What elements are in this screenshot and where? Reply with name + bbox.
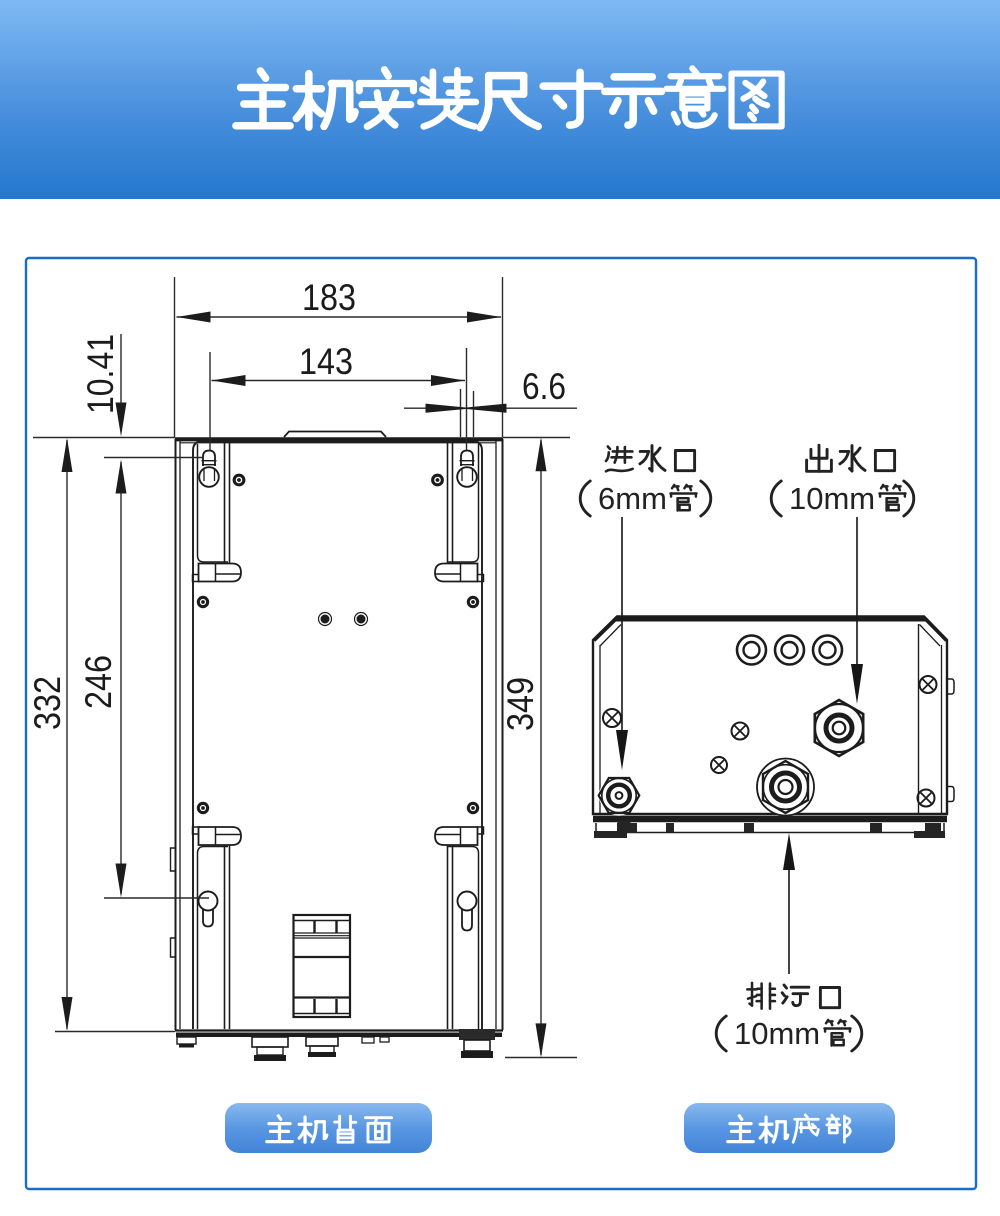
svg-text:6mm: 6mm xyxy=(598,481,667,516)
svg-text:6.6: 6.6 xyxy=(522,366,566,407)
svg-text:10.41: 10.41 xyxy=(80,334,121,414)
svg-text:143: 143 xyxy=(299,341,353,382)
svg-text:246: 246 xyxy=(78,655,119,709)
svg-text:349: 349 xyxy=(500,677,541,731)
svg-text:183: 183 xyxy=(302,277,356,318)
svg-text:10mm: 10mm xyxy=(734,1016,820,1051)
svg-text:332: 332 xyxy=(27,676,68,730)
svg-text:10mm: 10mm xyxy=(789,481,875,516)
